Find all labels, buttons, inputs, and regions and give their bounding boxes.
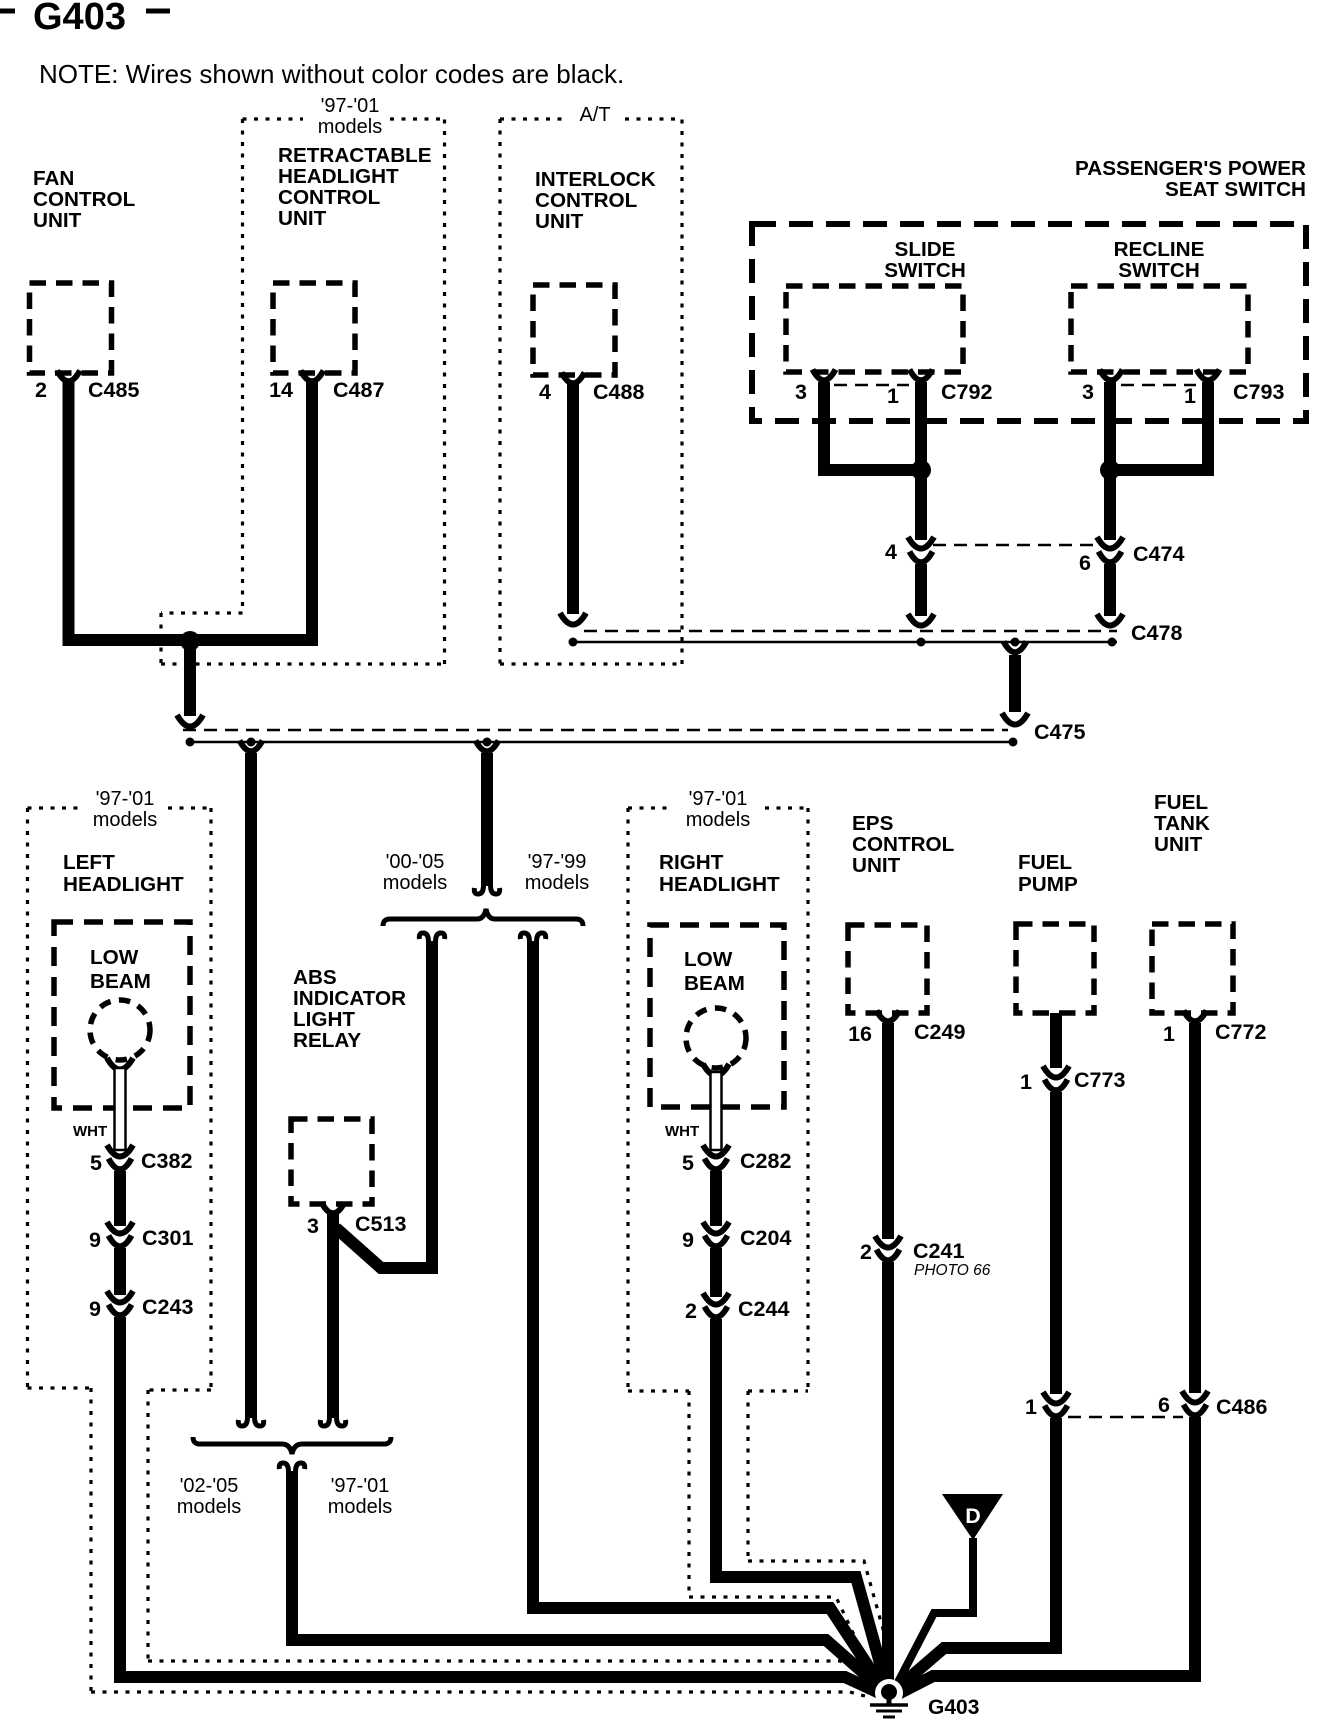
svg-text:LIGHT: LIGHT	[293, 1008, 355, 1031]
svg-text:6: 6	[1158, 1393, 1170, 1417]
svg-text:'00-'05: '00-'05	[386, 851, 445, 873]
svg-text:WHT: WHT	[665, 1123, 699, 1140]
svg-text:CONTROL: CONTROL	[535, 189, 637, 212]
svg-text:C488: C488	[593, 380, 644, 404]
svg-text:HEADLIGHT: HEADLIGHT	[63, 873, 184, 896]
svg-text:HEADLIGHT: HEADLIGHT	[278, 165, 399, 188]
svg-text:models: models	[383, 872, 447, 894]
svg-text:1: 1	[1025, 1395, 1037, 1419]
svg-text:UNIT: UNIT	[852, 854, 901, 877]
svg-text:LOW: LOW	[90, 946, 139, 969]
svg-text:2: 2	[860, 1240, 872, 1264]
svg-text:FUEL: FUEL	[1154, 791, 1208, 814]
svg-text:C792: C792	[941, 380, 992, 404]
svg-text:C475: C475	[1034, 720, 1085, 744]
svg-text:C382: C382	[141, 1149, 192, 1173]
svg-text:CONTROL: CONTROL	[278, 186, 380, 209]
svg-text:G403: G403	[33, 0, 126, 38]
svg-text:'97-'01: '97-'01	[96, 788, 155, 810]
svg-text:C793: C793	[1233, 380, 1284, 404]
svg-text:models: models	[177, 1496, 241, 1518]
svg-text:INTERLOCK: INTERLOCK	[535, 168, 656, 191]
svg-text:models: models	[93, 809, 157, 831]
svg-text:INDICATOR: INDICATOR	[293, 987, 406, 1010]
svg-text:CONTROL: CONTROL	[33, 188, 135, 211]
svg-text:SWITCH: SWITCH	[1118, 259, 1200, 282]
svg-text:models: models	[525, 872, 589, 894]
svg-text:RELAY: RELAY	[293, 1029, 361, 1052]
svg-text:UNIT: UNIT	[535, 210, 584, 233]
svg-text:SEAT SWITCH: SEAT SWITCH	[1165, 178, 1306, 201]
svg-text:BEAM: BEAM	[684, 972, 745, 995]
svg-text:PASSENGER'S POWER: PASSENGER'S POWER	[1075, 157, 1306, 180]
svg-text:1: 1	[1020, 1070, 1032, 1094]
svg-text:RIGHT: RIGHT	[659, 851, 724, 874]
svg-text:5: 5	[90, 1151, 102, 1175]
svg-text:C478: C478	[1131, 621, 1182, 645]
svg-text:PHOTO 66: PHOTO 66	[914, 1262, 991, 1279]
svg-text:LOW: LOW	[684, 948, 733, 971]
svg-text:'97-'01: '97-'01	[321, 95, 380, 117]
svg-text:3: 3	[1082, 380, 1094, 404]
svg-text:1: 1	[1184, 384, 1196, 408]
svg-text:5: 5	[682, 1151, 694, 1175]
svg-text:FUEL: FUEL	[1018, 851, 1072, 874]
svg-text:3: 3	[307, 1214, 319, 1238]
svg-text:C243: C243	[142, 1295, 193, 1319]
svg-text:2: 2	[35, 378, 47, 402]
svg-text:'97-'99: '97-'99	[528, 851, 587, 873]
svg-text:4: 4	[885, 540, 897, 564]
svg-text:models: models	[686, 809, 750, 831]
svg-text:BEAM: BEAM	[90, 970, 151, 993]
svg-text:RETRACTABLE: RETRACTABLE	[278, 144, 432, 167]
svg-text:C244: C244	[738, 1297, 789, 1321]
svg-text:14: 14	[269, 378, 293, 402]
svg-text:HEADLIGHT: HEADLIGHT	[659, 873, 780, 896]
svg-text:G403: G403	[928, 1696, 979, 1719]
svg-text:C241: C241	[913, 1239, 964, 1263]
svg-text:16: 16	[848, 1022, 872, 1046]
svg-text:C249: C249	[914, 1020, 965, 1044]
svg-text:LEFT: LEFT	[63, 851, 115, 874]
svg-text:4: 4	[539, 380, 551, 404]
svg-text:TANK: TANK	[1154, 812, 1210, 835]
svg-text:WHT: WHT	[73, 1123, 107, 1140]
svg-text:C513: C513	[355, 1212, 406, 1236]
svg-text:C487: C487	[333, 378, 384, 402]
svg-text:SLIDE: SLIDE	[895, 238, 956, 261]
svg-text:UNIT: UNIT	[33, 209, 82, 232]
svg-text:D: D	[965, 1504, 981, 1528]
svg-text:C204: C204	[740, 1226, 791, 1250]
svg-text:9: 9	[682, 1228, 694, 1252]
svg-text:C282: C282	[740, 1149, 791, 1173]
svg-text:NOTE: Wires shown without colo: NOTE: Wires shown without color codes ar…	[39, 59, 624, 89]
svg-text:SWITCH: SWITCH	[884, 259, 966, 282]
svg-text:C773: C773	[1074, 1068, 1125, 1092]
svg-text:3: 3	[795, 380, 807, 404]
svg-text:C474: C474	[1133, 542, 1184, 566]
svg-text:C485: C485	[88, 378, 139, 402]
svg-text:C301: C301	[142, 1226, 193, 1250]
svg-text:'97-'01: '97-'01	[331, 1475, 390, 1497]
svg-text:C486: C486	[1216, 1395, 1267, 1419]
svg-text:C772: C772	[1215, 1020, 1266, 1044]
svg-text:1: 1	[1163, 1022, 1175, 1046]
svg-text:'97-'01: '97-'01	[689, 788, 748, 810]
svg-text:RECLINE: RECLINE	[1114, 238, 1205, 261]
svg-text:EPS: EPS	[852, 812, 893, 835]
svg-text:'02-'05: '02-'05	[180, 1475, 239, 1497]
svg-text:1: 1	[887, 384, 899, 408]
svg-text:ABS: ABS	[293, 966, 337, 989]
svg-text:models: models	[328, 1496, 392, 1518]
svg-text:UNIT: UNIT	[278, 207, 327, 230]
svg-text:2: 2	[685, 1299, 697, 1323]
svg-text:9: 9	[89, 1297, 101, 1321]
svg-text:models: models	[318, 116, 382, 138]
svg-text:9: 9	[89, 1228, 101, 1252]
svg-text:PUMP: PUMP	[1018, 873, 1078, 896]
svg-text:A/T: A/T	[579, 104, 610, 126]
svg-text:FAN: FAN	[33, 167, 74, 190]
svg-text:CONTROL: CONTROL	[852, 833, 954, 856]
svg-text:6: 6	[1079, 551, 1091, 575]
svg-text:UNIT: UNIT	[1154, 833, 1203, 856]
